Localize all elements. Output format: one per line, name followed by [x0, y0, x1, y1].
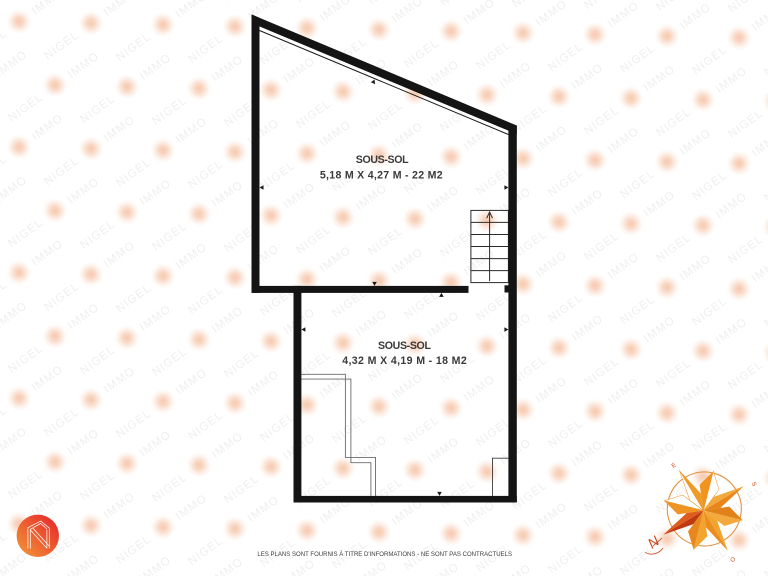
- svg-text:SOUS-SOL: SOUS-SOL: [378, 340, 431, 352]
- svg-text:LES PLANS SONT FOURNIS À TITRE: LES PLANS SONT FOURNIS À TITRE D'INFORMA…: [257, 551, 512, 558]
- svg-text:O: O: [730, 556, 738, 563]
- svg-text:E: E: [671, 463, 678, 470]
- svg-text:SOUS-SOL: SOUS-SOL: [356, 154, 409, 166]
- svg-text:5,18 M X 4,27 M - 22 M2: 5,18 M X 4,27 M - 22 M2: [320, 170, 443, 182]
- svg-text:4,32 M X 4,19 M - 18 M2: 4,32 M X 4,19 M - 18 M2: [342, 355, 467, 367]
